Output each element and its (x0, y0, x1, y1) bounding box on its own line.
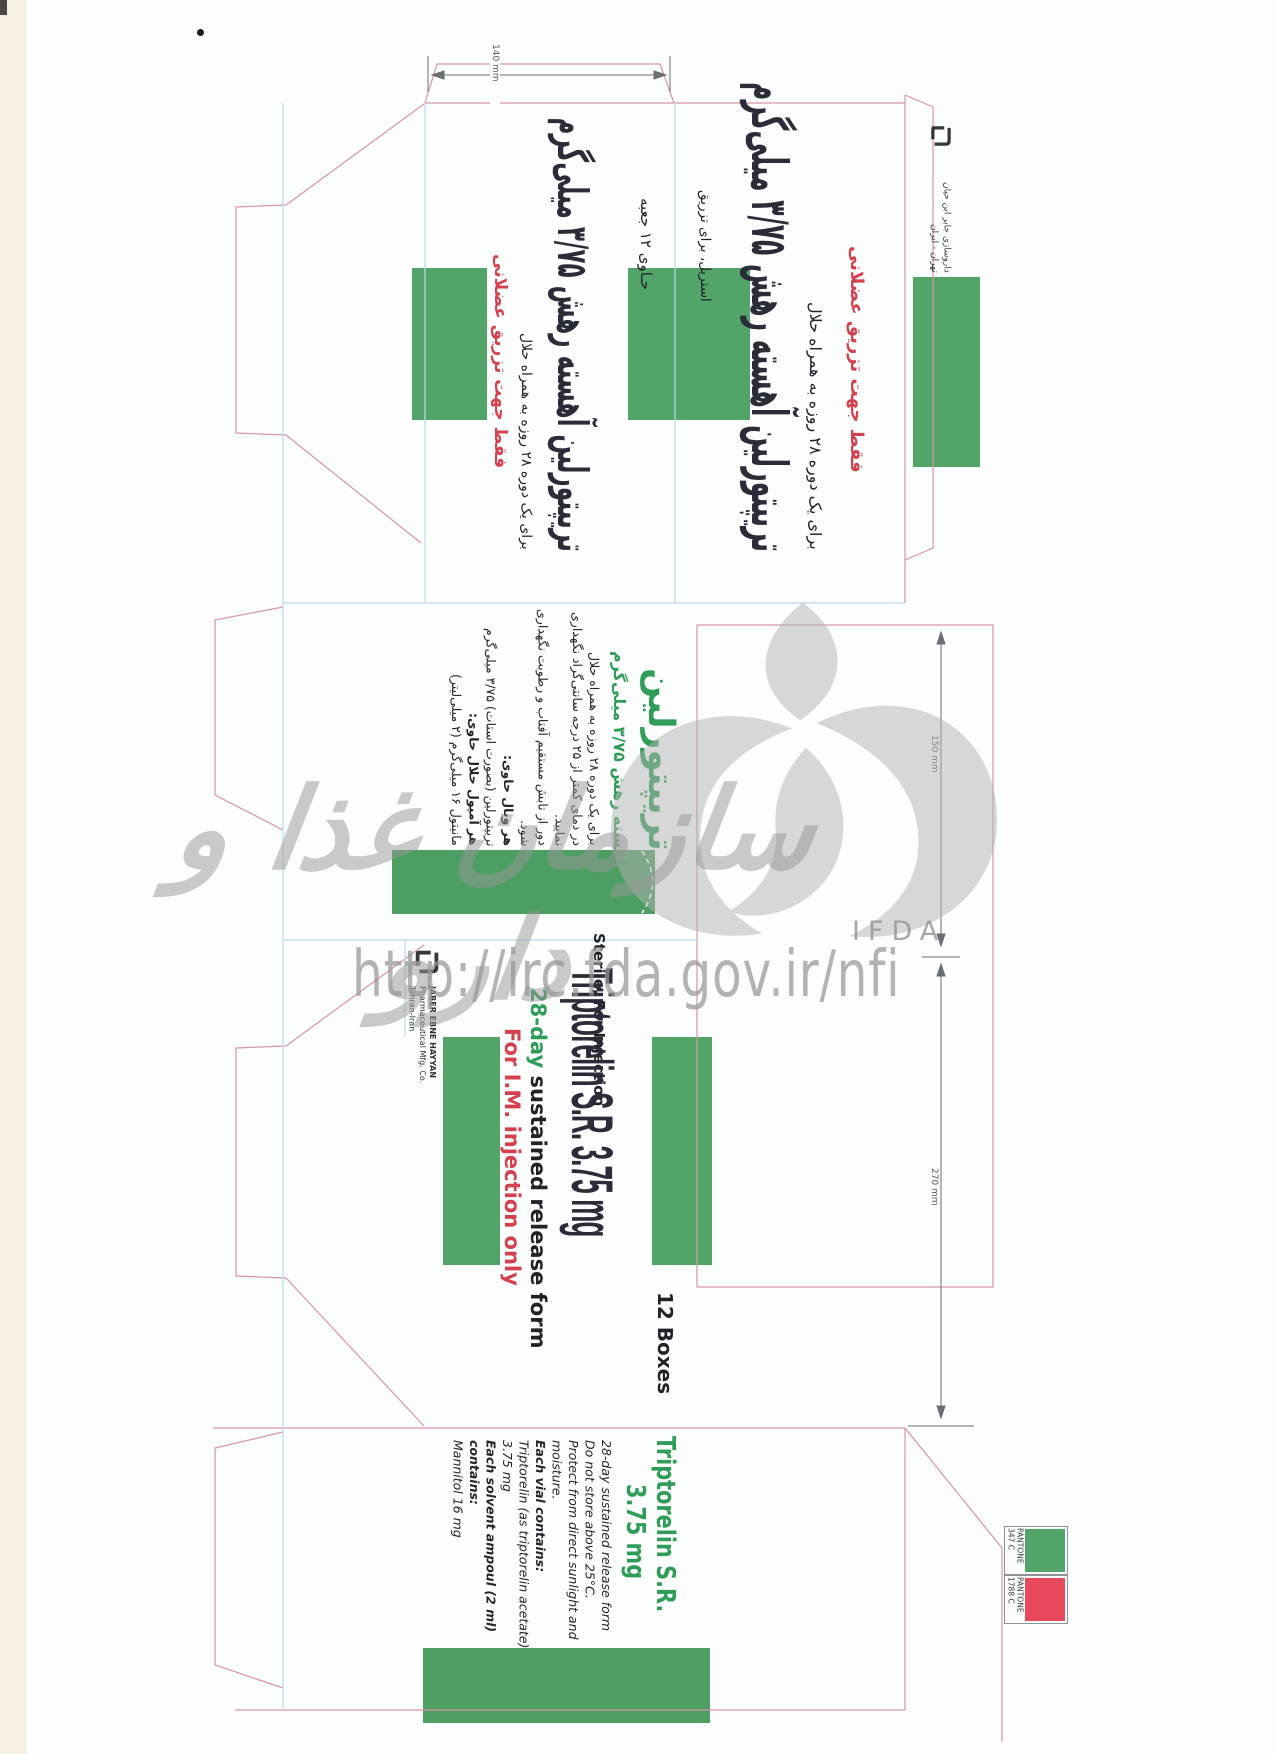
watermark-url: http://irc.fda.gov.ir/nfi (352, 938, 900, 1012)
pantone-red-label: PANTONE 1788 C (1005, 1576, 1023, 1623)
pantone-green-brand: PANTONE (1015, 1528, 1024, 1573)
en-back-brand: Triptorelin S.R. (650, 1436, 680, 1636)
en-front-subtitle-rest: sustained release form (526, 1068, 550, 1348)
en-front-count: 12 Boxes (653, 1292, 677, 1402)
pantone-swatch-red: PANTONE 1788 C (1004, 1575, 1068, 1624)
dim-width-label: 140 mm (490, 42, 500, 112)
en-back-strength: 3.75 mg (620, 1484, 650, 1576)
en-front-warning: For I.M. injection only (500, 1028, 524, 1338)
fa-front-period: برای یک دوره ۲۸ روزه به همراه حلال (806, 150, 825, 550)
fa-front-title: تریپتورلین آهسته رهش ۳/۷۵ میلی‌گرم (740, 112, 798, 552)
fa-side-title: تریپتورلین آهسته رهش ۳/۷۵ میلی‌گرم (548, 112, 597, 552)
fa-front-sterile: استریل، برای تزریق (697, 112, 713, 302)
fa-company-name: داروسازی جابر ابن حیان (940, 158, 952, 273)
en-back-line: contains: (466, 1440, 483, 1655)
en-back-line: Protect from direct sunlight and (565, 1440, 582, 1655)
pantone-red-chip (1025, 1578, 1065, 1621)
fa-front-warning: فقط جهت تزریق عضلانی (846, 268, 867, 473)
jeh-logo-icon (927, 123, 955, 149)
en-back-text-block: 28-day sustained release form Do not sto… (446, 1440, 614, 1655)
pantone-green-label: PANTONE 347 C (1005, 1527, 1023, 1574)
en-back-line: 28-day sustained release form (598, 1440, 615, 1655)
pantone-swatch-green: PANTONE 347 C (1004, 1526, 1068, 1575)
en-front-subtitle: 28-day sustained release form (526, 988, 550, 1348)
fa-company-city: تهران - ایران (928, 158, 940, 273)
fa-side-warning: فقط جهت تزریق عضلانی (490, 268, 510, 468)
fa-side-contains: حـاوی ۱۲ جعبه (637, 112, 655, 290)
en-back-line: Each vial contains: (532, 1440, 549, 1655)
en-back-line: 3.75 mg (499, 1440, 516, 1655)
pantone-green-code: 347 C (1006, 1528, 1015, 1573)
pantone-red-brand: PANTONE (1015, 1577, 1024, 1622)
scanned-carton-dieline-page: 140 mm 150 mm 270 mm حـاوی ۱۲ جعبه تریپت… (0, 0, 1275, 1754)
en-back-line: Do not store above 25°C. (581, 1440, 598, 1655)
fa-side-period: برای یک دوره ۲۸ روزه به همراه حلال (518, 200, 534, 550)
pantone-green-chip (1025, 1529, 1065, 1572)
en-back-line: Each solvent ampoul (2 ml) (482, 1440, 499, 1655)
en-back-line: Mannitol 16 mg (449, 1440, 466, 1655)
en-back-line: Triptorelin (as triptorelin acetate) (515, 1440, 532, 1655)
pantone-red-code: 1788 C (1006, 1577, 1015, 1622)
dim-depth-label: 270 mm (929, 1166, 939, 1236)
en-front-title: Triptorelin S.R. 3.75 mg (558, 968, 625, 1333)
fa-company-block: داروسازی جابر ابن حیان تهران - ایران (928, 158, 952, 273)
en-back-line: moisture. (548, 1440, 565, 1655)
